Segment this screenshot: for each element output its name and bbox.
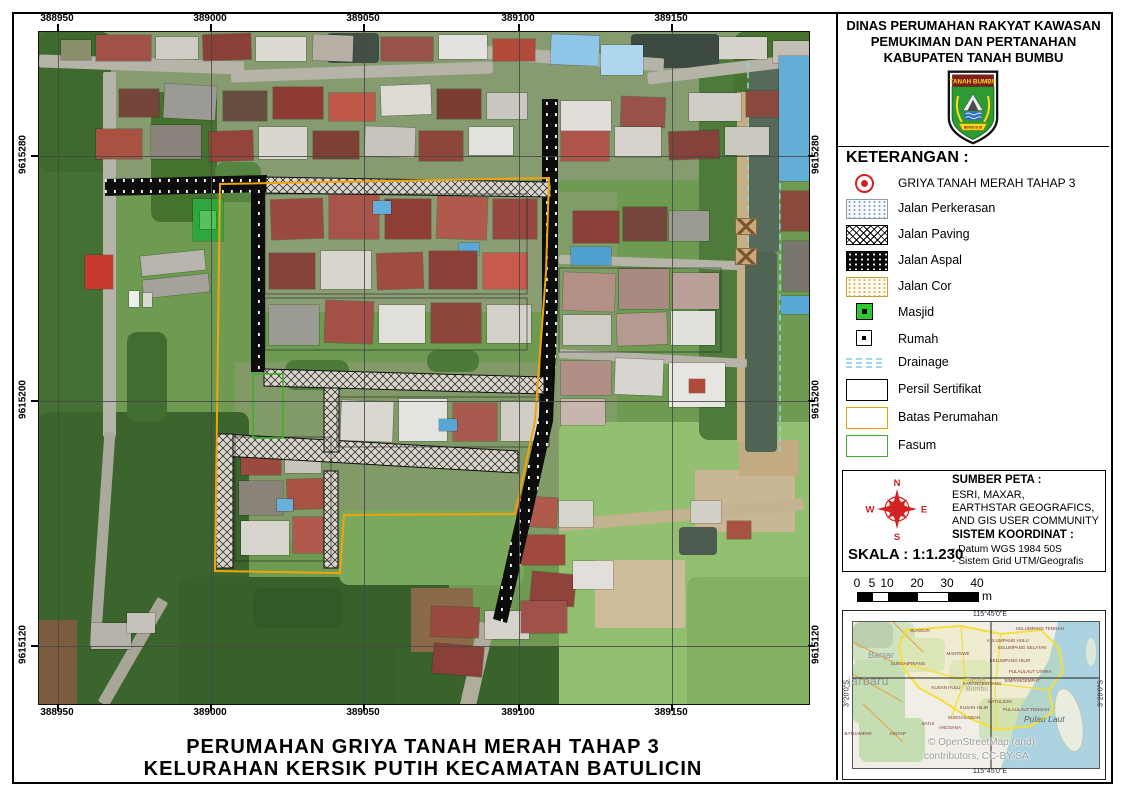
inset-copyright-line2: contributors, CC-BY-SA — [924, 751, 1029, 762]
inset-copyright-line1: © OpenStreetMap (and) — [928, 737, 1035, 748]
map-title: PERUMAHAN GRIYA TANAH MERAH TAHAP 3 KELU… — [38, 736, 808, 780]
x-axis-label-top: 389150 — [654, 13, 687, 24]
legend-swatch-persil — [846, 379, 888, 401]
inset-place-label: Bumbu — [966, 686, 988, 693]
inset-district-label: KINTAP — [890, 731, 906, 736]
legend-label-drainage: Drainage — [898, 355, 949, 369]
agency-header: DINAS PERUMAHAN RAKYAT KAWASAN PEMUKIMAN… — [838, 12, 1109, 147]
jalan-aspal-road — [251, 190, 265, 372]
compass-e: E — [921, 505, 927, 516]
tanah-bumbu-logo: TANAH BUMBU BERSUJUD — [942, 68, 1004, 146]
scalebar-segment — [918, 593, 948, 601]
legend-swatch-aspal — [846, 251, 888, 271]
legend-swatch-drainage — [846, 358, 888, 368]
legend-label-perkerasan: Jalan Perkerasan — [898, 201, 995, 215]
compass-w: W — [866, 505, 875, 516]
inset-district-label: KARANGBINTANG — [963, 681, 1002, 686]
inset-district-label: KUSAN HULU — [931, 685, 960, 690]
scalebar-number: 10 — [880, 576, 893, 590]
y-axis-label-left: 9615200 — [18, 370, 29, 430]
y-tick-right — [808, 400, 815, 402]
legend-label-aspal: Jalan Aspal — [898, 253, 962, 267]
legend-label-paving: Jalan Paving — [898, 227, 970, 241]
legend-label-rumah: Rumah — [898, 332, 938, 346]
scalebar-number: 5 — [869, 576, 876, 590]
scalebar-number: 20 — [910, 576, 923, 590]
x-tick-bottom — [210, 704, 212, 711]
x-axis-label-top: 389000 — [193, 13, 226, 24]
y-axis-label-left: 9615280 — [18, 125, 29, 185]
griya-point-symbol — [855, 174, 874, 193]
x-axis-label-top: 389050 — [346, 13, 379, 24]
compass-rose: N E S W — [864, 476, 930, 542]
coord-line1: - Datum WGS 1984 50S — [952, 544, 1062, 555]
coord-line2: - Sistem Grid UTM/Geografis — [952, 556, 1083, 567]
inset-district-label: SUNGAILOBAN — [948, 715, 981, 720]
inset-district-label: PULAULAUT TENGAH — [1003, 707, 1049, 712]
grid-line-vertical — [58, 32, 59, 704]
agency-line1: DINAS PERUMAHAN RAKYAT KAWASAN — [838, 18, 1109, 34]
agency-line3: KABUPATEN TANAH BUMBU — [838, 50, 1109, 66]
legend-swatch-cor — [846, 277, 888, 297]
y-tick-left — [31, 155, 38, 157]
x-tick-top — [671, 24, 673, 31]
map-title-line2: KELURAHAN KERSIK PUTIH KECAMATAN BATULIC… — [38, 758, 808, 780]
y-tick-left — [31, 645, 38, 647]
jalan-paving-road — [264, 369, 544, 394]
legend-label-batas: Batas Perumahan — [898, 410, 998, 424]
logo-title-text: TANAH BUMBU — [950, 78, 997, 85]
x-tick-bottom — [518, 704, 520, 711]
jalan-paving-road — [216, 434, 233, 568]
persil-sertifikat-outline — [265, 194, 527, 294]
persil-sertifikat-outline — [265, 298, 527, 350]
scalebar-segment — [858, 593, 873, 601]
inset-district-label: KUSAN HILIR — [960, 705, 988, 710]
legend-swatch-perkerasan — [846, 199, 888, 219]
inset-district-label: SUNGAIPINANG — [891, 661, 926, 666]
inset-district-label: PULAULAUT UTARA — [1009, 669, 1052, 674]
legend-swatch-fasum — [846, 435, 888, 457]
scalebar-unit: m — [982, 589, 992, 603]
inset-district-label: KELUMPANG HILIR — [990, 658, 1031, 663]
persil-sertifikat-outline — [559, 268, 721, 352]
jalan-aspal-road — [105, 175, 267, 196]
grid-line-vertical — [672, 32, 673, 704]
map-layout-page: 3889503889503890003890003890503890503891… — [0, 0, 1123, 793]
source-line2: EARTHSTAR GEOGRAFICS, — [952, 502, 1094, 514]
grid-line-horizontal — [39, 156, 809, 157]
grid-line-vertical — [364, 32, 365, 704]
inset-district-label: MANTEWE — [947, 651, 970, 656]
grid-line-vertical — [211, 32, 212, 704]
y-tick-right — [808, 645, 815, 647]
legend-label-persil: Persil Sertifikat — [898, 382, 981, 396]
legend-swatch-masjid — [856, 303, 873, 320]
inset-right-coordinate: 3°20'0"S — [1098, 674, 1105, 714]
y-axis-label-left: 9615120 — [18, 615, 29, 675]
x-tick-bottom — [57, 704, 59, 711]
inset-district-label: BATUAMPAR — [844, 731, 871, 736]
map-title-line1: PERUMAHAN GRIYA TANAH MERAH TAHAP 3 — [38, 736, 808, 758]
coord-system-title: SISTEM KOORDINAT : — [952, 529, 1074, 541]
inset-district-label: BATULICIN — [988, 699, 1011, 704]
inset-district-label: KELUMPANG SELATAN — [997, 645, 1046, 650]
persil-sertifikat-outline — [337, 397, 549, 447]
x-tick-top — [210, 24, 212, 31]
x-tick-top — [57, 24, 59, 31]
scalebar-number: 0 — [854, 576, 861, 590]
inset-district-label: SIMPANGEMPAT — [1004, 678, 1039, 683]
source-title: SUMBER PETA : — [952, 474, 1041, 486]
inset-place-label: Banjar — [868, 650, 894, 660]
grid-line-horizontal — [39, 401, 809, 402]
compass-s: S — [894, 532, 900, 542]
logo-motto-text: BERSUJUD — [964, 125, 983, 129]
scale-label: SKALA : 1:1.230 — [848, 546, 963, 563]
jalan-paving-road — [223, 434, 518, 473]
inset-district-label: KELUMPANG HULU — [987, 638, 1028, 643]
source-line3: AND GIS USER COMMUNITY — [952, 515, 1099, 527]
legend-swatch-rumah — [856, 330, 872, 346]
legend-swatch-paving — [846, 225, 888, 245]
griya-point-label: GRIYA TANAH MERAH TAHAP 3 — [898, 176, 1075, 190]
legend-heading: KETERANGAN : — [846, 149, 969, 167]
x-tick-bottom — [671, 704, 673, 711]
scalebar-segment — [888, 593, 918, 601]
y-tick-right — [808, 155, 815, 157]
legend-swatch-batas — [846, 407, 888, 429]
inset-district-label: KELUMPANG TENGAH — [1016, 626, 1064, 631]
x-axis-label-top: 389100 — [501, 13, 534, 24]
source-line1: ESRI, MAXAR, — [952, 489, 1025, 501]
y-tick-left — [31, 400, 38, 402]
map-overlay-svg — [39, 32, 809, 704]
inset-place-label: jarbaru — [848, 674, 889, 688]
inset-bottom-coordinate: 115°45'0"E — [973, 768, 1007, 775]
scalebar-number: 30 — [940, 576, 953, 590]
inset-top-coordinate: 115°45'0"E — [973, 611, 1007, 618]
inset-district-label: SATUI — [922, 721, 935, 726]
inset-road — [863, 704, 903, 742]
inset-district-label: ANGSANA — [939, 725, 961, 730]
scalebar-segment — [873, 593, 888, 601]
scalebar-segment — [948, 593, 978, 601]
legend-label-fasum: Fasum — [898, 438, 936, 452]
legend-label-masjid: Masjid — [898, 305, 934, 319]
aerial-map-canvas — [38, 31, 810, 705]
grid-line-horizontal — [39, 646, 809, 647]
inset-place-label: Pulau Laut — [1024, 714, 1065, 724]
grid-line-vertical — [519, 32, 520, 704]
legend-label-cor: Jalan Cor — [898, 279, 952, 293]
compass-n: N — [894, 478, 901, 489]
scalebar-bar — [857, 592, 979, 602]
scalebar-number: 40 — [970, 576, 983, 590]
x-tick-bottom — [363, 704, 365, 711]
inset-district-label: BUNGUR — [910, 628, 930, 633]
x-tick-top — [518, 24, 520, 31]
x-axis-label-top: 388950 — [40, 13, 73, 24]
x-tick-top — [363, 24, 365, 31]
inset-coast-island — [1086, 638, 1096, 666]
agency-line2: PEMUKIMAN DAN PERTANAHAN — [838, 34, 1109, 50]
